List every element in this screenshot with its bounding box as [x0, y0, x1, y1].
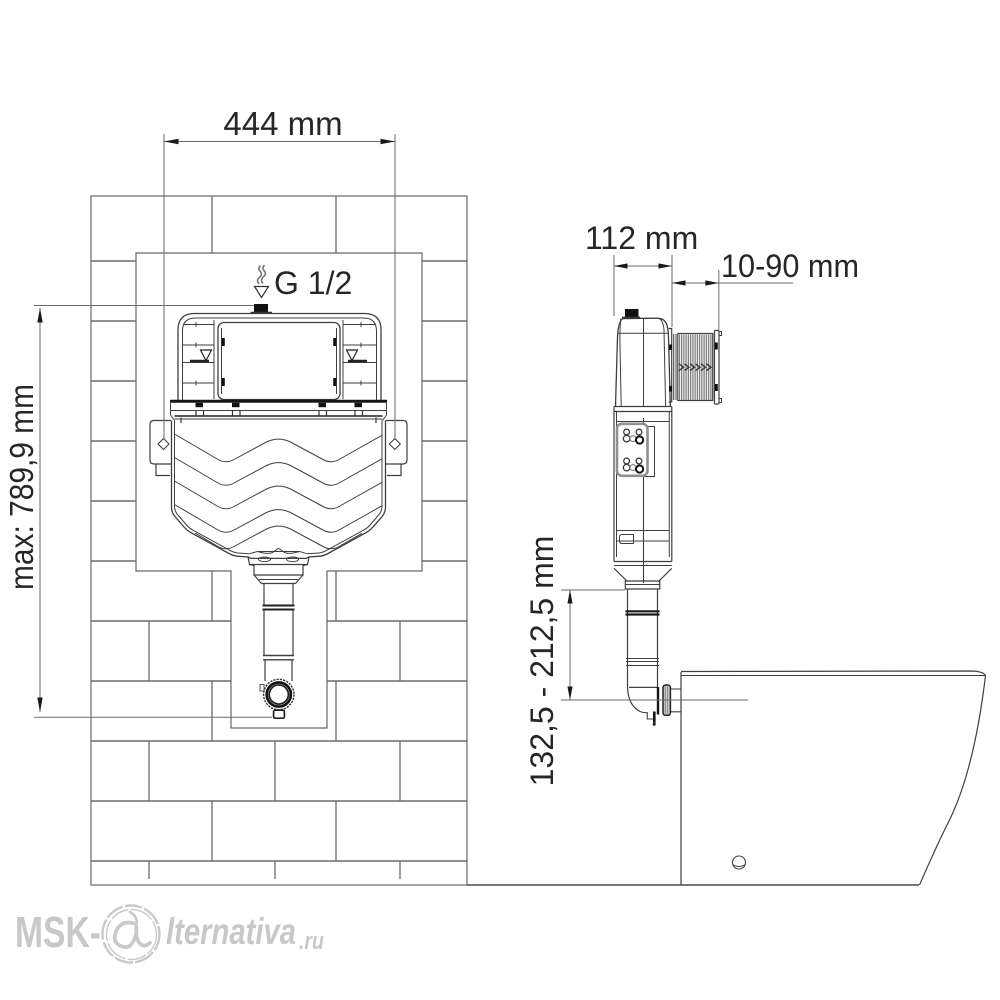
svg-text:G 1/2: G 1/2 — [274, 265, 352, 301]
svg-text:MSK-: MSK- — [15, 908, 101, 957]
svg-text:10-90 mm: 10-90 mm — [721, 248, 859, 284]
svg-text:max: 789,9 mm: max: 789,9 mm — [3, 384, 40, 590]
svg-text:132,5 - 212,5 mm: 132,5 - 212,5 mm — [524, 536, 560, 787]
svg-text:.ru: .ru — [299, 928, 324, 955]
svg-text:444 mm: 444 mm — [223, 105, 342, 142]
svg-text:112 mm: 112 mm — [585, 220, 698, 256]
svg-text:lternativa: lternativa — [166, 911, 296, 952]
